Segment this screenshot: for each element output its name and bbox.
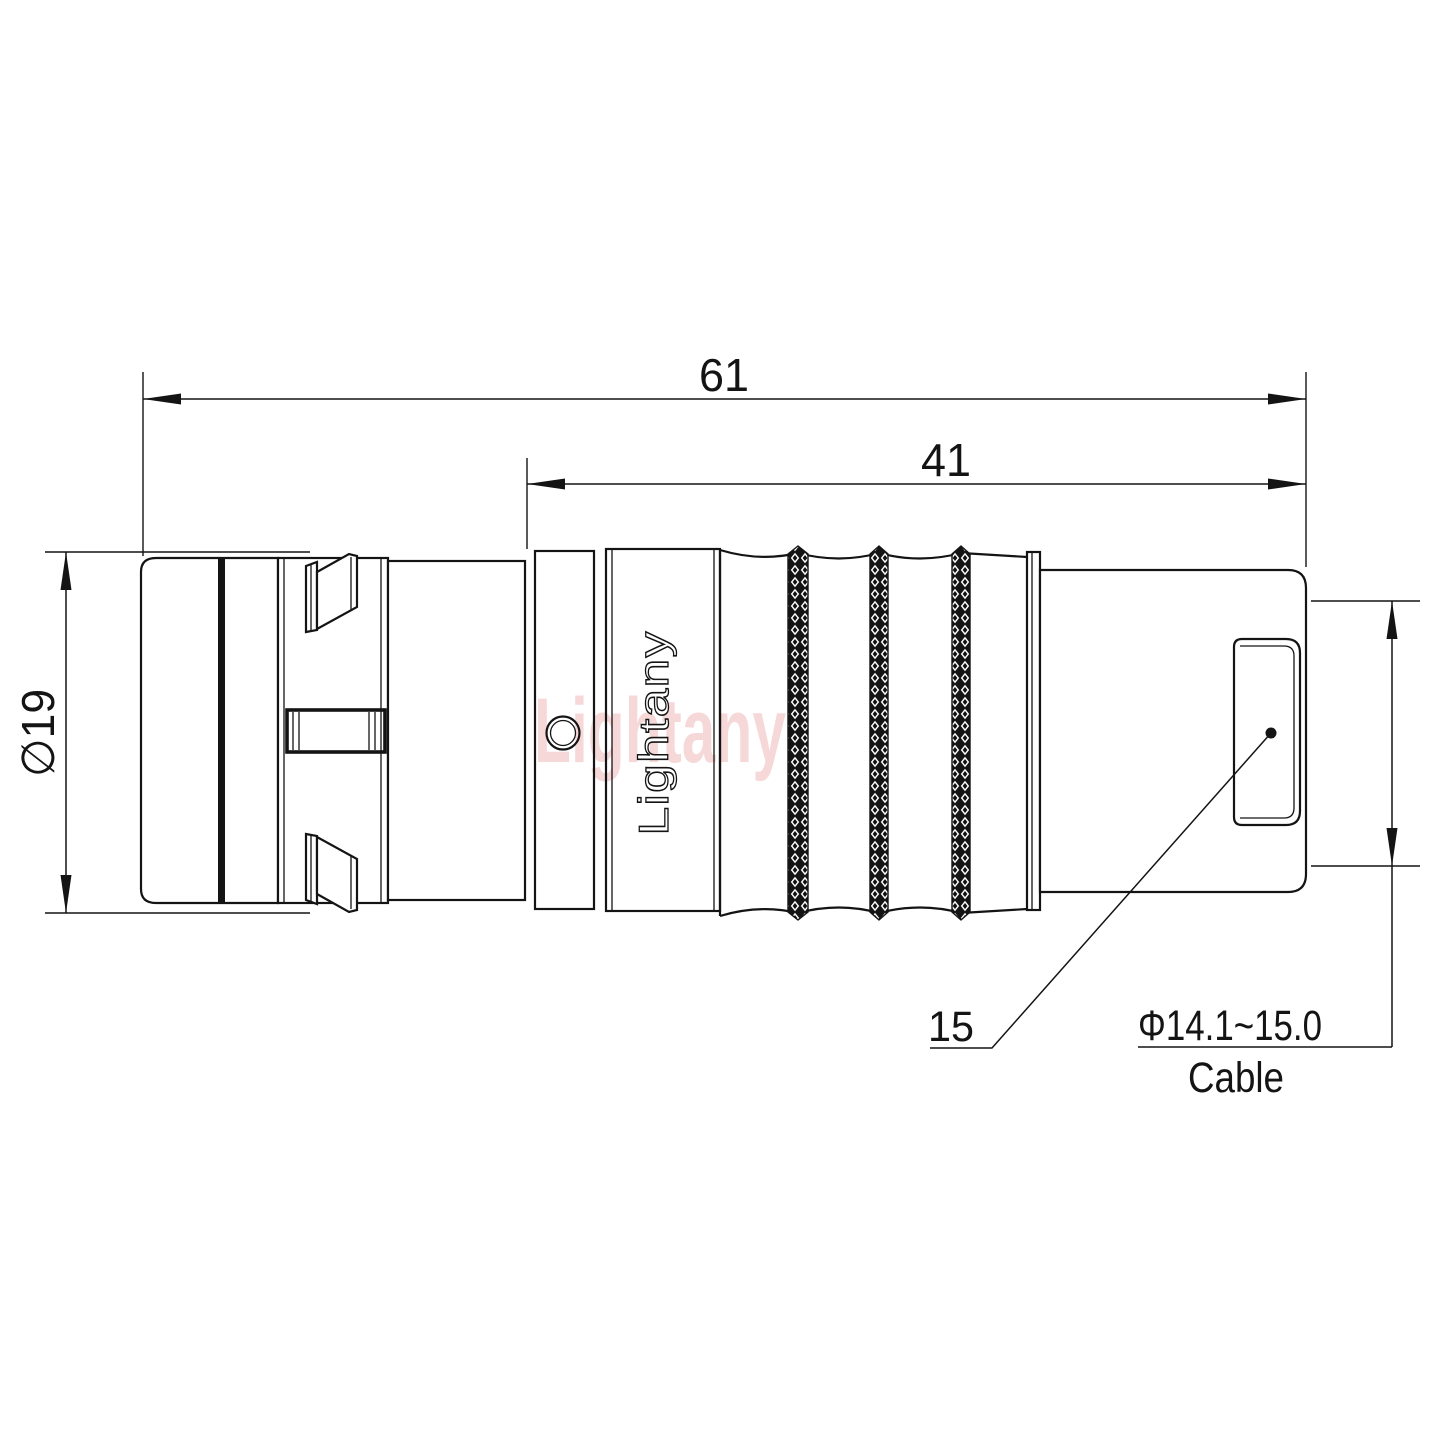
arrowhead-up-icon	[1387, 601, 1398, 639]
cable-caption-label: Cable	[1188, 1054, 1284, 1102]
extension-lines	[1311, 601, 1420, 866]
extension-lines	[143, 372, 1306, 567]
coupling-nut-outline	[141, 558, 278, 903]
dim-value-41: 41	[921, 434, 971, 486]
arrowhead-left-icon	[527, 479, 565, 490]
knurl-band	[870, 546, 888, 920]
dim-value-diameter-19: ∅19	[12, 689, 64, 777]
dim-front-length: 41	[527, 434, 1306, 549]
arrowhead-up-icon	[61, 552, 72, 590]
arrowhead-down-icon	[1387, 828, 1398, 866]
cable-diameter-range-label: Φ14.1~15.0	[1138, 1002, 1322, 1050]
knurl-band	[952, 546, 970, 920]
body-logo-label: Lightany	[630, 631, 677, 836]
barrel-outline	[388, 561, 525, 900]
nut-seal-stripe	[218, 558, 225, 903]
knurl-band	[788, 546, 808, 920]
arrowhead-down-icon	[61, 875, 72, 913]
technical-drawing-page: Lightany	[0, 0, 1440, 1440]
collar-outline	[1027, 552, 1040, 910]
arrowhead-right-icon	[1268, 479, 1306, 490]
arrowhead-left-icon	[143, 394, 181, 405]
arrowhead-right-icon	[1268, 394, 1306, 405]
dim-value-61: 61	[699, 349, 749, 401]
dim-overall-length: 61	[143, 349, 1306, 567]
connector-technical-drawing: Lightany	[0, 0, 1440, 1440]
dim-value-15: 15	[928, 1003, 974, 1051]
